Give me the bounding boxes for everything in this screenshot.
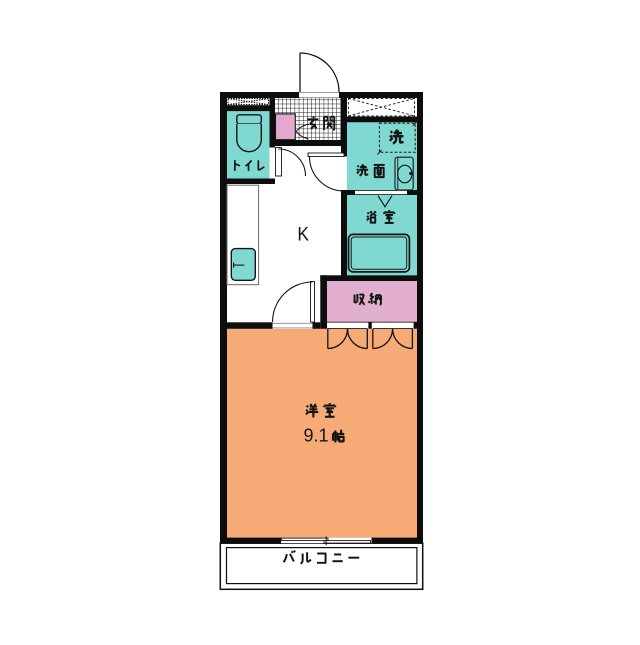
svg-text:9.1: 9.1: [304, 426, 329, 446]
svg-text:K: K: [297, 223, 309, 245]
